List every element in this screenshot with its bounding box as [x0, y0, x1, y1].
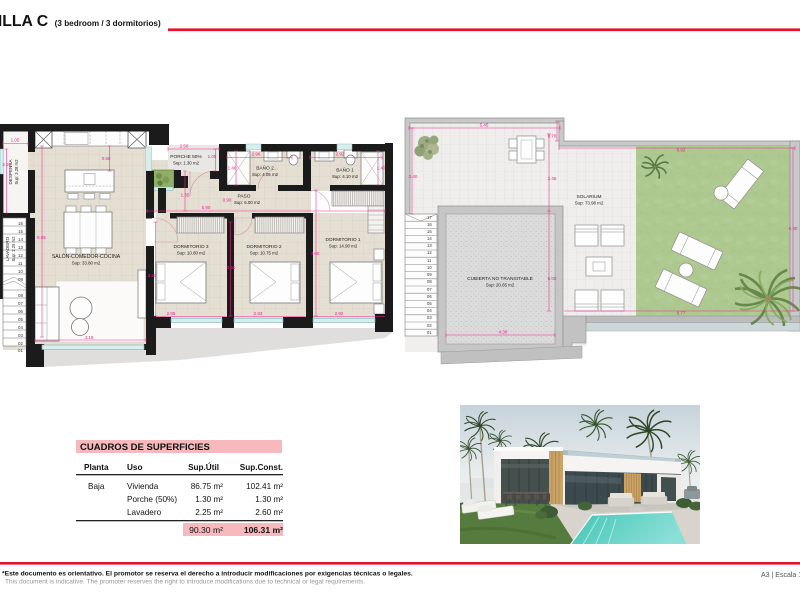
svg-text:2.45: 2.45 — [548, 176, 557, 181]
svg-text:01: 01 — [427, 330, 432, 335]
svg-text:1.35: 1.35 — [181, 193, 190, 198]
svg-text:15: 15 — [18, 229, 23, 234]
svg-text:2.92: 2.92 — [336, 152, 345, 157]
svg-text:1.30 m²: 1.30 m² — [255, 495, 283, 504]
svg-text:13: 13 — [427, 243, 432, 248]
svg-text:Sup: 73.98 m2: Sup: 73.98 m2 — [575, 201, 604, 206]
svg-text:5.00: 5.00 — [548, 276, 557, 281]
svg-text:LAVADERO: LAVADERO — [5, 236, 10, 261]
svg-text:4.30: 4.30 — [499, 330, 508, 335]
svg-text:0.70: 0.70 — [548, 134, 557, 139]
svg-text:3.10: 3.10 — [2, 162, 11, 167]
svg-text:07: 07 — [427, 287, 432, 292]
svg-text:Sup: 1.30 m2: Sup: 1.30 m2 — [173, 161, 200, 166]
svg-text:Sup.Const.: Sup.Const. — [240, 463, 283, 472]
svg-text:Sup: 10.75 m2: Sup: 10.75 m2 — [250, 251, 279, 256]
svg-text:Sup: 2.25 m2: Sup: 2.25 m2 — [11, 236, 16, 262]
svg-text:106.31 m²: 106.31 m² — [244, 525, 283, 535]
svg-text:This document is indicative. T: This document is indicative. The promote… — [5, 579, 365, 586]
svg-text:05: 05 — [427, 301, 432, 306]
svg-text:5.90: 5.90 — [202, 205, 211, 210]
svg-text:BAÑO 2: BAÑO 2 — [256, 165, 274, 172]
svg-text:A3 | Escala 1/75: A3 | Escala 1/75 — [761, 572, 800, 579]
svg-text:Vivienda: Vivienda — [127, 482, 159, 491]
svg-text:DORMITORIO 3: DORMITORIO 3 — [173, 244, 208, 250]
svg-text:Sup: 10.80 m2: Sup: 10.80 m2 — [177, 251, 206, 256]
svg-text:Sup: 4.10 m2: Sup: 4.10 m2 — [332, 174, 359, 179]
svg-text:Sup: 20.65 m2: Sup: 20.65 m2 — [486, 283, 515, 288]
svg-text:*Este documento es orientativo: *Este documento es orientativo. El promo… — [2, 571, 413, 578]
svg-text:02: 02 — [427, 323, 432, 328]
svg-text:6.40: 6.40 — [789, 226, 798, 231]
svg-text:01: 01 — [18, 348, 23, 353]
svg-text:04: 04 — [427, 308, 432, 313]
svg-text:4.15: 4.15 — [85, 335, 94, 340]
svg-text:1.40: 1.40 — [228, 166, 237, 171]
svg-text:5.45: 5.45 — [480, 123, 489, 128]
svg-text:13: 13 — [18, 245, 23, 250]
svg-text:VILLA C: VILLA C — [0, 13, 48, 30]
svg-text:02: 02 — [18, 341, 23, 346]
svg-text:3.80: 3.80 — [148, 273, 157, 278]
svg-text:(3 bedroom / 3 dormitorios): (3 bedroom / 3 dormitorios) — [55, 19, 161, 28]
svg-text:Sup: 3.28 m2: Sup: 3.28 m2 — [14, 159, 19, 185]
svg-text:1.30 m²: 1.30 m² — [195, 495, 223, 504]
svg-text:BAÑO 1: BAÑO 1 — [336, 167, 354, 174]
svg-text:0.90: 0.90 — [223, 198, 232, 203]
svg-text:1.05: 1.05 — [11, 138, 20, 143]
svg-text:2.96: 2.96 — [252, 152, 261, 157]
svg-text:CUADROS DE SUPERFICIES: CUADROS DE SUPERFICIES — [80, 442, 210, 453]
svg-text:Porche (50%): Porche (50%) — [127, 495, 177, 504]
svg-text:2.85: 2.85 — [167, 311, 176, 316]
svg-text:DORMITORIO 1: DORMITORIO 1 — [325, 237, 360, 243]
svg-text:14: 14 — [427, 236, 432, 241]
svg-text:PORCHE 50%: PORCHE 50% — [170, 154, 202, 160]
svg-text:8.77: 8.77 — [677, 311, 686, 316]
svg-text:2.25 m²: 2.25 m² — [195, 508, 223, 517]
svg-text:09: 09 — [18, 277, 23, 282]
svg-text:04: 04 — [18, 325, 23, 330]
svg-text:11: 11 — [18, 261, 23, 266]
svg-text:Sup: 6.00 m2: Sup: 6.00 m2 — [234, 200, 261, 205]
svg-text:Sup: 4.05 m2: Sup: 4.05 m2 — [252, 172, 279, 177]
svg-text:8.05: 8.05 — [37, 235, 46, 240]
svg-text:06: 06 — [427, 294, 432, 299]
svg-text:05: 05 — [18, 317, 23, 322]
svg-text:Baja: Baja — [88, 482, 105, 491]
svg-text:08: 08 — [18, 293, 23, 298]
svg-text:4.60: 4.60 — [311, 251, 320, 256]
svg-text:2.60 m²: 2.60 m² — [255, 508, 283, 517]
svg-text:3.40: 3.40 — [409, 174, 418, 179]
svg-text:08: 08 — [427, 279, 432, 284]
svg-text:1.40: 1.40 — [377, 166, 386, 171]
svg-text:SALÓN-COMEDOR-COCINA: SALÓN-COMEDOR-COCINA — [52, 253, 121, 260]
svg-text:CUBIERTA NO TRANSITABLE: CUBIERTA NO TRANSITABLE — [467, 276, 533, 282]
svg-text:03: 03 — [427, 315, 432, 320]
svg-text:15: 15 — [427, 229, 432, 234]
svg-text:0.90: 0.90 — [102, 156, 111, 161]
svg-text:12: 12 — [427, 250, 432, 255]
svg-text:07: 07 — [18, 301, 23, 306]
svg-text:11: 11 — [427, 258, 432, 263]
svg-text:3.60: 3.60 — [227, 265, 236, 270]
svg-text:2.50: 2.50 — [180, 144, 189, 149]
svg-text:Sup.Útil: Sup.Útil — [188, 461, 219, 472]
svg-text:Lavadero: Lavadero — [127, 508, 162, 517]
svg-text:DORMITORIO 2: DORMITORIO 2 — [246, 244, 281, 250]
svg-text:06: 06 — [18, 309, 23, 314]
svg-text:09: 09 — [427, 272, 432, 277]
svg-text:90.30 m²: 90.30 m² — [189, 525, 223, 535]
svg-text:Sup: 33.80 m2: Sup: 33.80 m2 — [72, 261, 101, 266]
svg-text:2.92: 2.92 — [335, 311, 344, 316]
svg-text:8.92: 8.92 — [677, 148, 686, 153]
svg-text:03: 03 — [18, 333, 23, 338]
svg-text:SOLARIUM: SOLARIUM — [576, 194, 601, 200]
svg-text:14: 14 — [18, 237, 23, 242]
svg-text:17: 17 — [427, 215, 432, 220]
svg-text:12: 12 — [18, 253, 23, 258]
svg-text:102.41 m²: 102.41 m² — [246, 482, 283, 491]
svg-text:Uso: Uso — [127, 463, 142, 472]
svg-text:10: 10 — [18, 269, 23, 274]
svg-text:1.05: 1.05 — [208, 154, 217, 159]
svg-text:Planta: Planta — [84, 463, 109, 472]
svg-text:PASO: PASO — [238, 194, 251, 200]
svg-text:Sup: 14.90 m2: Sup: 14.90 m2 — [329, 244, 358, 249]
svg-text:86.75 m²: 86.75 m² — [191, 482, 224, 491]
svg-text:16: 16 — [18, 221, 23, 226]
svg-text:2.83: 2.83 — [254, 311, 263, 316]
svg-text:16: 16 — [427, 222, 432, 227]
svg-text:10: 10 — [427, 265, 432, 270]
